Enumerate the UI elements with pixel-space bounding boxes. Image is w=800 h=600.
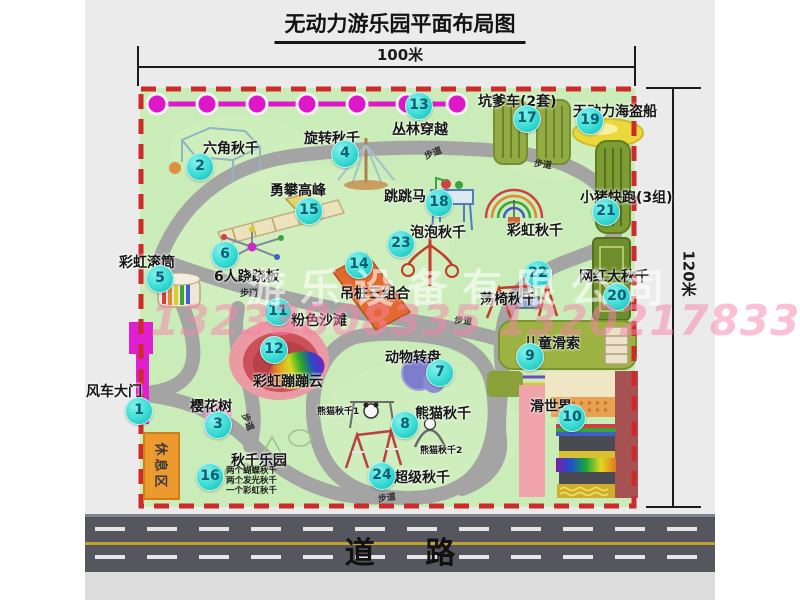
dimension-label-width: 100米 <box>355 44 445 65</box>
attraction-badge-1: 1 <box>125 397 153 425</box>
path-label: 步道 <box>239 411 258 433</box>
attraction-badge-18: 18 <box>425 189 453 217</box>
attraction-badge-13: 13 <box>405 92 433 120</box>
attraction-label-18: 跳跳马 <box>384 186 426 206</box>
path-label: 步道 <box>377 489 397 504</box>
attraction-badge-6: 6 <box>211 241 239 269</box>
attraction-label-15: 勇攀高峰 <box>270 180 326 200</box>
attraction-badge-16: 16 <box>196 463 224 491</box>
page-title: 无动力游乐园平面布局图 <box>275 8 526 44</box>
attraction-badge-7: 7 <box>426 359 454 387</box>
attraction-badge-9: 9 <box>516 343 544 371</box>
map-label: 彩虹秋千 <box>507 220 563 240</box>
attraction-badge-23: 23 <box>387 230 415 258</box>
attraction-label-13: 丛林穿越 <box>392 119 448 139</box>
attraction-badge-10: 10 <box>558 404 586 432</box>
attraction-label-2: 六角秋千 <box>203 138 259 158</box>
attraction-label-8: 熊猫秋千 <box>415 403 471 423</box>
attraction-badge-21: 21 <box>592 198 620 226</box>
attraction-badge-8: 8 <box>391 411 419 439</box>
map-label: 熊猫秋千1 <box>317 404 359 417</box>
swing-park-note: 一个彩虹秋千 <box>226 484 277 496</box>
attraction-badge-15: 15 <box>295 197 323 225</box>
attraction-badge-2: 2 <box>186 153 214 181</box>
attraction-badge-5: 5 <box>146 265 174 293</box>
attraction-badge-24: 24 <box>368 462 396 490</box>
dimension-label-height: 120米 <box>679 245 700 303</box>
attraction-badge-4: 4 <box>331 140 359 168</box>
attraction-label-24: 超级秋千 <box>394 467 450 487</box>
park-map-screenshot: 风车大门1六角秋千2樱花树3旋转秋千4彩虹滚筒56人跷跷板6动物转盘7熊猫秋千8… <box>0 0 800 600</box>
attraction-label-12: 彩虹蹦蹦云 <box>253 371 323 391</box>
path-label: 步道 <box>422 143 444 162</box>
rest-area-label: 休息区 <box>152 442 171 490</box>
watermark-phone: 13233808335 13202178333 <box>150 296 800 345</box>
attraction-label-23: 泡泡秋千 <box>410 222 466 242</box>
attraction-badge-19: 19 <box>576 107 604 135</box>
attraction-badge-3: 3 <box>204 411 232 439</box>
map-label: 熊猫秋千2 <box>420 443 462 456</box>
attraction-badge-17: 17 <box>513 105 541 133</box>
rest-area-box: 休息区 <box>143 432 180 500</box>
path-label: 步道 <box>533 156 553 171</box>
